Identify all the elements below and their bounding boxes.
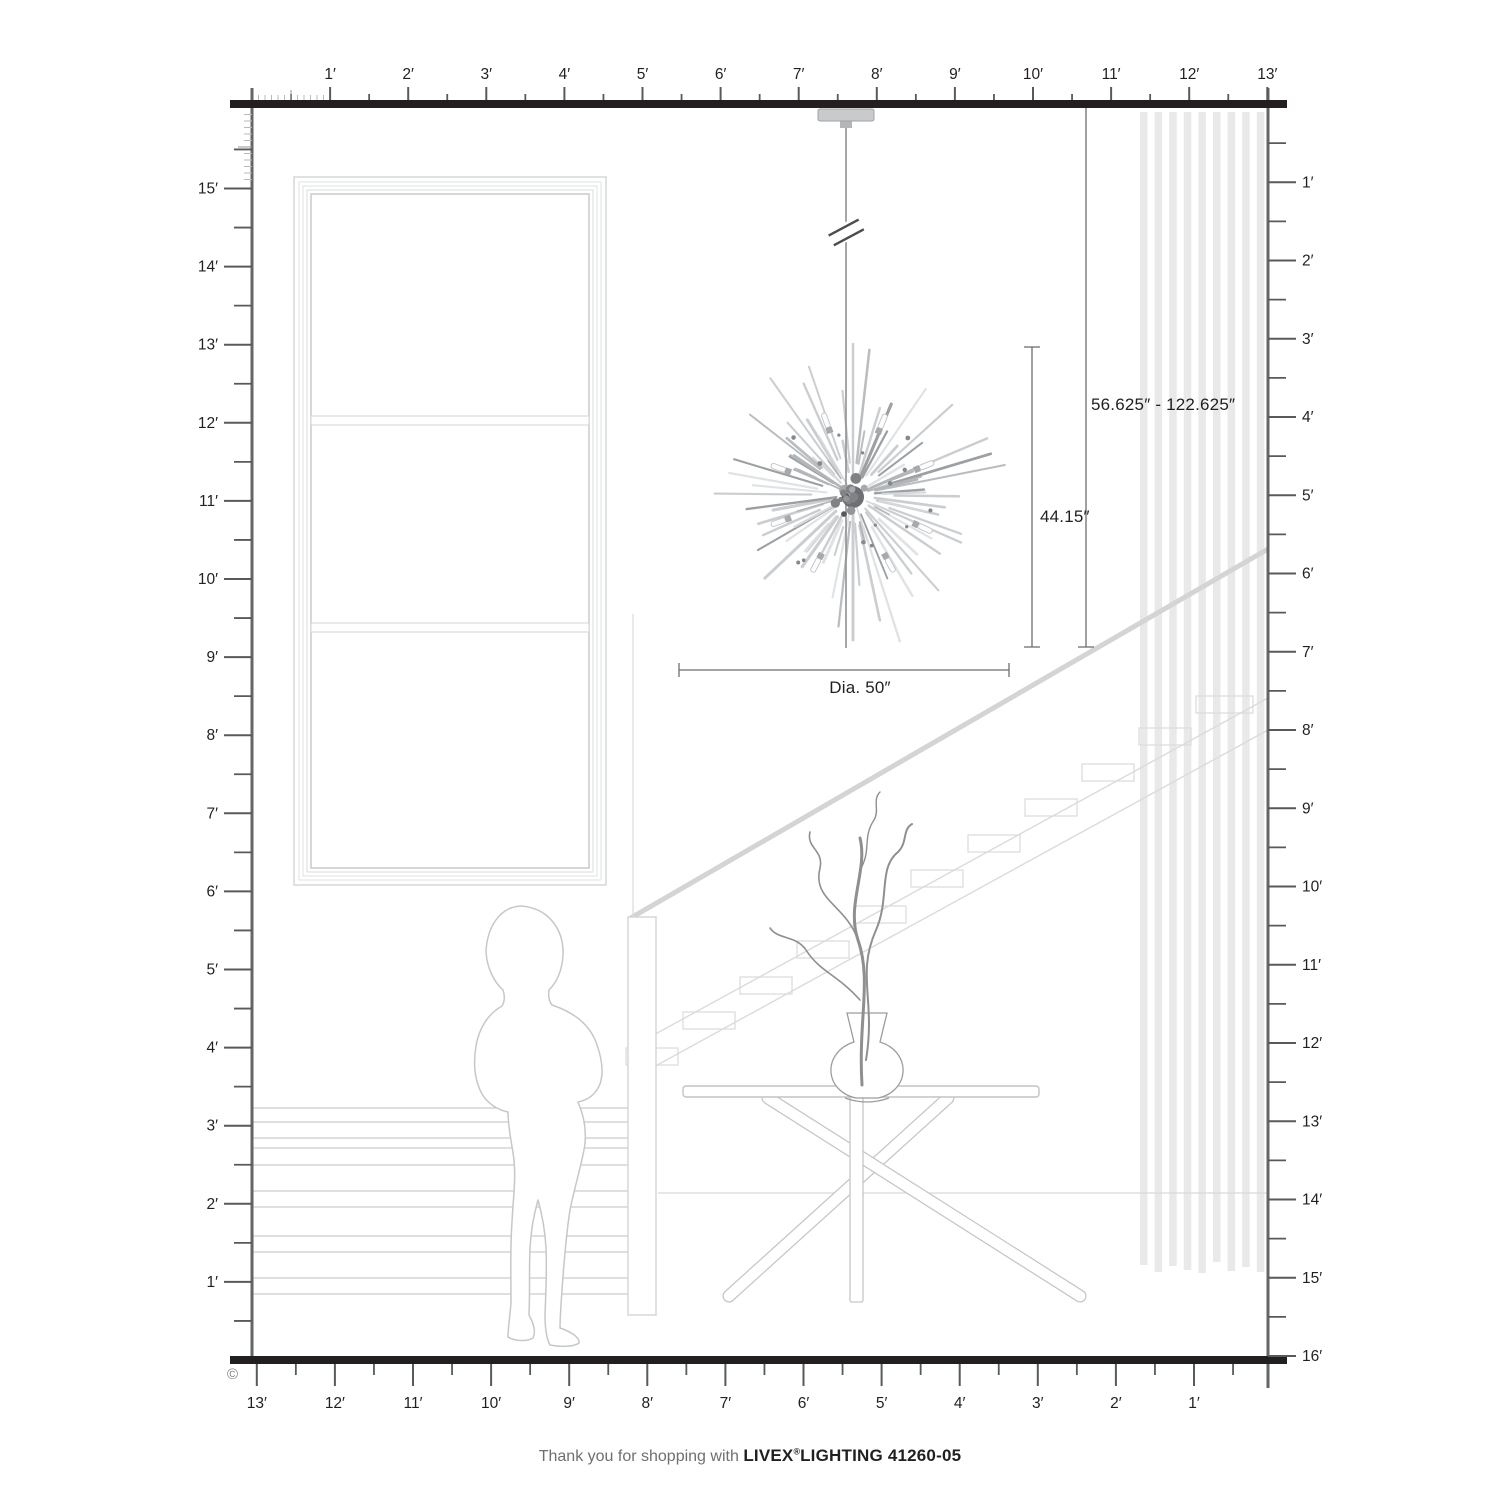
bottom-ruler-label: 13′: [247, 1395, 267, 1412]
diameter-label: Dia. 50″: [780, 678, 940, 698]
chandelier: [715, 109, 1005, 648]
chandelier-ray: [715, 494, 812, 495]
right-ruler-label: 10′: [1302, 879, 1322, 896]
bottom-ruler-label: 5′: [876, 1395, 888, 1412]
brand-model: LIGHTING 41260-05: [800, 1446, 961, 1465]
bottom-ruler-label: 12′: [325, 1395, 345, 1412]
stair-newel-post: [628, 917, 656, 1315]
hub-fitting: [841, 511, 847, 517]
bottom-ruler-label: 7′: [720, 1395, 732, 1412]
ray-holder-dot: [874, 524, 877, 527]
ray-holder-dot: [802, 558, 806, 562]
hub-fitting: [843, 495, 849, 501]
right-ruler-label: 11′: [1302, 957, 1321, 974]
left-ruler-label: 1′: [206, 1274, 218, 1291]
ray-holder-dot: [905, 436, 910, 441]
ceiling-canopy: [818, 109, 874, 121]
ceiling-line: [230, 100, 1287, 108]
baluster: [1140, 112, 1148, 1265]
bottom-ruler-label: 2′: [1110, 1395, 1122, 1412]
left-ruler-label: 2′: [206, 1196, 218, 1213]
left-ruler-label: 4′: [206, 1040, 218, 1057]
dimension-lines: [679, 108, 1094, 677]
ray-holder-dot: [861, 451, 864, 454]
baluster: [1198, 112, 1206, 1273]
top-ruler-label: 2′: [402, 66, 414, 83]
left-ruler-label: 3′: [206, 1118, 218, 1135]
right-ruler-label: 9′: [1302, 800, 1314, 817]
left-ruler-label: 7′: [206, 805, 218, 822]
window-mullion: [311, 623, 589, 632]
baluster: [1169, 112, 1177, 1266]
left-ruler-label: 13′: [198, 337, 218, 354]
chandelier-ray: [809, 367, 840, 459]
ray-holder-dot: [796, 560, 800, 564]
top-ruler-label: 11′: [1102, 66, 1121, 83]
bulb-glass: [919, 460, 935, 470]
ray-holder-dot: [905, 525, 908, 528]
vase-branches: [770, 792, 912, 1085]
top-ruler-label: 1′: [324, 66, 336, 83]
baluster: [1213, 112, 1221, 1262]
bottom-ruler-label: 11′: [404, 1395, 423, 1412]
ray-holder-dot: [903, 468, 907, 472]
top-ruler-label: 13′: [1257, 66, 1277, 83]
left-ruler-label: 6′: [206, 883, 218, 900]
bulb-glass: [878, 413, 888, 429]
ray-holder-dot: [861, 540, 865, 544]
left-ruler-label: 10′: [198, 571, 218, 588]
top-ruler-label: 3′: [481, 66, 493, 83]
hub-fitting: [849, 486, 855, 492]
hub-fitting: [840, 489, 847, 496]
staircase: [626, 112, 1268, 1315]
spec-sheet: 1′2′3′4′5′6′7′8′9′10′11′12′13′15′14′13′1…: [0, 0, 1500, 1500]
bottom-ruler-label: 9′: [563, 1395, 575, 1412]
right-ruler-label: 1′: [1302, 174, 1314, 191]
right-ruler-label: 15′: [1302, 1270, 1322, 1287]
right-ruler-label: 2′: [1302, 253, 1314, 270]
window-mullion: [311, 416, 589, 425]
baluster: [1242, 112, 1250, 1267]
fence-slats: [253, 1108, 650, 1294]
table: [683, 1086, 1080, 1302]
right-ruler-label: 8′: [1302, 722, 1314, 739]
chandelier-ray: [878, 405, 952, 472]
right-ruler-label: 6′: [1302, 566, 1314, 583]
bottom-ruler-label: 4′: [954, 1395, 966, 1412]
chandelier-ray: [855, 523, 859, 584]
top-ruler-label: 8′: [871, 66, 883, 83]
ray-holder-dot: [870, 544, 874, 548]
hub-fitting: [850, 473, 861, 484]
left-ruler-label: 11′: [199, 493, 218, 510]
baluster: [1257, 112, 1265, 1272]
window: [294, 177, 606, 885]
hub-fitting: [847, 506, 856, 515]
fixture-height-label: 44.15″: [1040, 507, 1090, 527]
stair-balusters: [1140, 112, 1264, 1273]
bottom-ruler-label: 1′: [1188, 1395, 1200, 1412]
footer: Thank you for shopping with LIVEX®LIGHTI…: [0, 1446, 1500, 1466]
floor-line: [230, 1356, 1287, 1364]
right-ruler-label: 5′: [1302, 487, 1314, 504]
table-center-post: [850, 1094, 863, 1302]
bulb-glass: [810, 557, 822, 573]
bottom-ruler-label: 10′: [481, 1395, 501, 1412]
right-ruler-label: 13′: [1302, 1113, 1322, 1130]
right-ruler-label: 12′: [1302, 1035, 1322, 1052]
hub-fitting: [861, 485, 868, 492]
canopy-collar: [840, 121, 852, 128]
right-ruler-label: 4′: [1302, 409, 1314, 426]
bottom-ruler-label: 6′: [798, 1395, 810, 1412]
right-ruler-label: 14′: [1302, 1192, 1322, 1209]
ray-holder-dot: [817, 461, 822, 466]
footer-prefix: Thank you for shopping with: [539, 1448, 739, 1465]
vase: [770, 792, 912, 1102]
left-ruler-label: 14′: [198, 259, 218, 276]
baluster: [1184, 112, 1192, 1270]
ray-holder-dot: [888, 481, 893, 486]
ray-holder-dot: [791, 435, 796, 440]
brand-name: LIVEX: [743, 1446, 793, 1465]
right-ruler-label: 16′: [1302, 1348, 1322, 1365]
top-ruler-label: 10′: [1023, 66, 1043, 83]
bottom-ruler-label: 8′: [642, 1395, 654, 1412]
chandelier-ray: [895, 496, 959, 497]
left-ruler-label: 5′: [206, 962, 218, 979]
top-ruler-label: 5′: [637, 66, 649, 83]
top-ruler-label: 7′: [793, 66, 805, 83]
top-ruler-label: 9′: [949, 66, 961, 83]
baluster: [1228, 112, 1236, 1271]
right-ruler-label: 3′: [1302, 331, 1314, 348]
bottom-ruler-label: 3′: [1032, 1395, 1044, 1412]
left-ruler-label: 9′: [206, 649, 218, 666]
scene-drawing: 1′2′3′4′5′6′7′8′9′10′11′12′13′15′14′13′1…: [0, 0, 1500, 1500]
right-ruler-label: 7′: [1302, 644, 1314, 661]
top-ruler-label: 6′: [715, 66, 727, 83]
top-ruler-label: 4′: [559, 66, 571, 83]
top-ruler-label: 12′: [1179, 66, 1199, 83]
ray-holder-dot: [837, 433, 840, 436]
baluster: [1155, 112, 1163, 1272]
left-ruler-label: 12′: [198, 415, 218, 432]
left-ruler-label: 15′: [198, 181, 218, 198]
copyright-symbol: ©: [227, 1366, 238, 1383]
left-ruler-label: 8′: [206, 727, 218, 744]
hanging-range-label: 56.625″ - 122.625″: [1091, 395, 1235, 415]
ray-holder-dot: [928, 508, 932, 512]
